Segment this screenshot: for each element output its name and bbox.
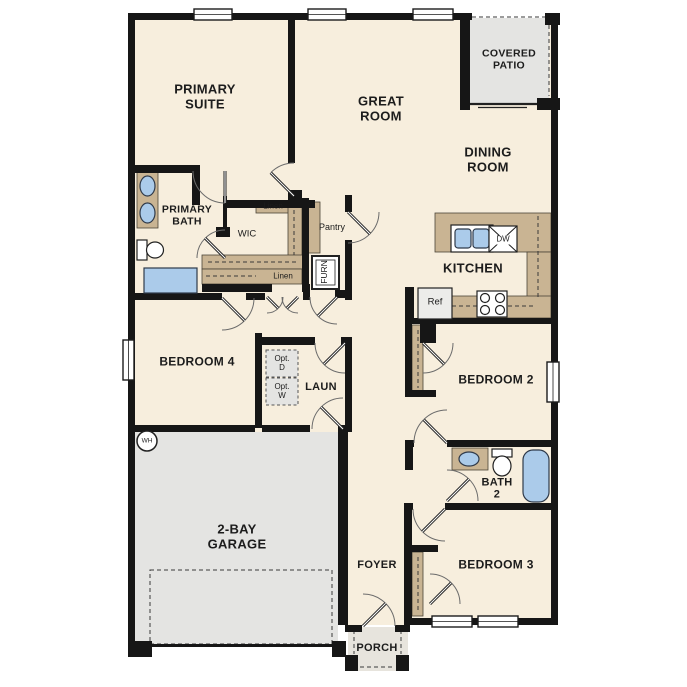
primary-bath-sink-2 <box>140 203 155 223</box>
room-label-laundry: LAUN <box>305 381 337 393</box>
wall-segment <box>447 440 551 447</box>
burner <box>496 306 505 315</box>
garage-door-sill <box>150 644 333 647</box>
label-pantry: Pantry <box>319 222 345 232</box>
wall-segment <box>303 284 310 300</box>
wall-segment <box>345 337 352 432</box>
wall-segment <box>345 195 352 212</box>
burner <box>496 294 505 303</box>
wall-segment <box>335 290 352 298</box>
wall-segment <box>404 510 412 625</box>
burner <box>481 306 490 315</box>
wall-segment <box>405 447 413 470</box>
room-label-bedroom3: BEDROOM 3 <box>458 558 533 571</box>
wall-segment <box>405 287 414 320</box>
wall-segment <box>128 13 135 657</box>
burner <box>481 294 490 303</box>
wall-segment <box>302 198 309 292</box>
primary-toilet-tank <box>137 240 147 260</box>
bath2-sink <box>459 452 479 466</box>
wall-segment <box>445 503 551 510</box>
wall-segment <box>405 390 436 397</box>
wall-segment <box>396 655 409 671</box>
label-opt-washer: Opt. W <box>274 383 289 401</box>
wall-segment <box>128 293 222 300</box>
label-refrigerator: Ref <box>428 298 443 309</box>
wall-segment <box>345 655 358 671</box>
room-label-bath2: BATH 2 <box>482 477 513 502</box>
wall-segment <box>405 320 412 397</box>
wall-segment <box>345 625 362 632</box>
wall-segment <box>135 165 197 173</box>
wall-segment <box>262 425 310 432</box>
room-label-bedroom2: BEDROOM 2 <box>458 373 533 386</box>
wall-segment <box>246 293 265 300</box>
kitchen-sink-basin-right <box>473 229 489 248</box>
wall-segment <box>338 428 348 625</box>
room-label-primary-bath: PRIMARY BATH <box>162 204 212 228</box>
label-dishwasher: DW <box>495 236 510 245</box>
wall-segment <box>288 13 295 163</box>
bath2-tub <box>523 450 549 502</box>
primary-bath-sink-1 <box>140 176 155 196</box>
wall-segment <box>262 337 315 345</box>
wall-segment <box>202 284 272 292</box>
wall-segment <box>128 641 152 657</box>
wall-segment <box>420 323 436 343</box>
room-label-great-room: GREAT ROOM <box>358 94 404 123</box>
wall-segment <box>537 98 560 110</box>
label-linen-top: Linen <box>263 203 283 212</box>
primary-toilet-bowl <box>147 242 164 258</box>
label-linen-bottom: Linen <box>273 273 293 282</box>
label-opt-dryer: Opt. D <box>274 355 289 373</box>
floor-plan-drawing <box>0 0 687 687</box>
kitchen-sink-basin-left <box>455 229 471 248</box>
kitchen-counter-east <box>527 252 551 298</box>
room-label-garage: 2-BAY GARAGE <box>208 522 267 551</box>
label-furnace: FURN <box>320 260 330 284</box>
wall-segment <box>395 625 410 632</box>
room-label-primary-suite: PRIMARY SUITE <box>174 82 236 111</box>
floor-plan: PRIMARY SUITE GREAT ROOM COVERED PATIO D… <box>0 0 687 687</box>
room-label-bedroom4: BEDROOM 4 <box>159 355 234 368</box>
bath2-toilet-bowl <box>493 456 511 476</box>
room-label-wic: WIC <box>238 230 256 241</box>
room-label-porch: PORCH <box>356 642 397 654</box>
label-water-heater: WH <box>142 437 153 444</box>
wall-segment <box>405 440 414 447</box>
wall-segment <box>460 13 470 110</box>
wic-rod-east <box>288 206 302 258</box>
primary-tub <box>144 268 197 293</box>
room-label-covered-patio: COVERED PATIO <box>482 48 536 72</box>
wall-segment <box>404 503 413 510</box>
room-label-dining-room: DINING ROOM <box>464 145 511 174</box>
wall-segment <box>545 13 560 25</box>
room-label-foyer: FOYER <box>357 559 396 571</box>
room-label-kitchen: KITCHEN <box>443 262 503 277</box>
wall-segment <box>332 641 346 657</box>
wall-segment <box>216 227 230 237</box>
wall-segment <box>255 333 262 428</box>
